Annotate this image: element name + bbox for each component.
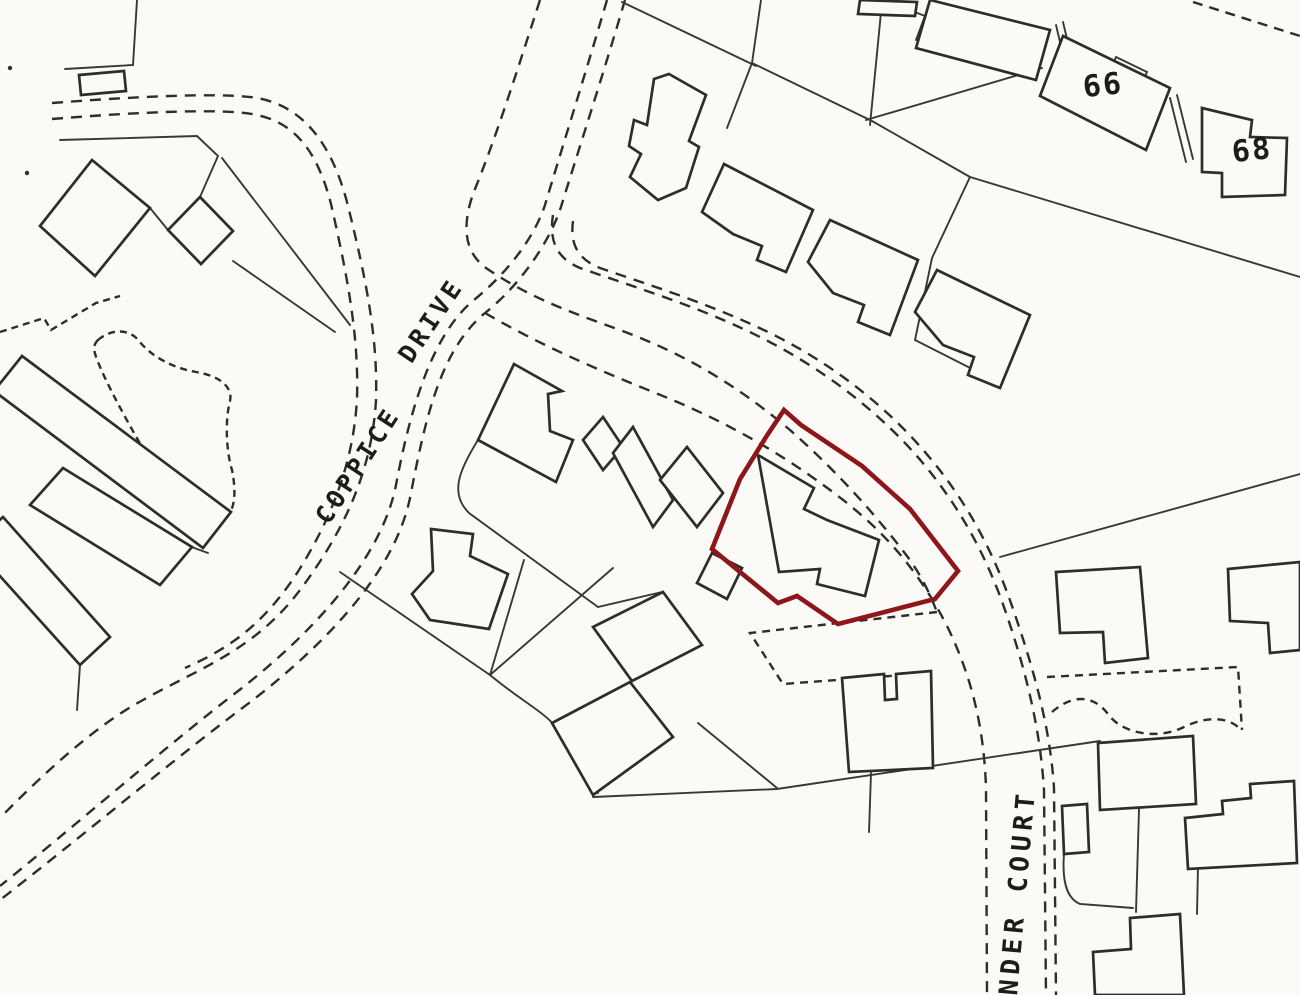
map-speck-0 [8,66,12,70]
fence-to-road-b-line [233,261,335,332]
dashed-zigzag-west-dashed-line [0,296,120,332]
site-boundary-red-outline [712,410,958,624]
house-middle-c-building-outline [660,447,723,527]
house-bottom-partial-building-outline [1093,914,1184,995]
house-coppice-east-building-outline [478,364,573,482]
road-court-south-dashed-line [485,313,987,995]
house-top-row-4-building-outline [915,270,1030,388]
party-wall-68-a-line [1170,98,1186,162]
house-court-l-shape-building-outline [842,671,933,772]
house-inside-site-building-outline [758,455,879,596]
fence-to-road-a-line [222,158,350,325]
party-wall-68-b-line [1177,95,1193,159]
house-court-stepped-building-outline [1185,781,1297,869]
fence-top-center-c-line [727,63,752,128]
plot-dashed-court-a-dashed-line [1047,667,1242,730]
house-east-l-shape-building-outline [1056,567,1148,663]
fence-vertical-top-line [870,2,882,125]
shed-diamond-building-outline [168,197,233,264]
field-line-east-line [1000,474,1300,557]
plot-dashed-court-wavy-dashed-line [1052,699,1239,734]
house-pair-northwest-building-outline [40,160,150,276]
fence-court-vert-b-line [869,773,871,832]
fence-court-vert-c-line [1197,866,1198,914]
outbuilding-top-left-building-outline [79,71,126,95]
house-top-edge-b-building-outline [916,0,1050,80]
terrace-tail-line [77,665,80,710]
house-court-block-building-outline [1098,736,1196,810]
fence-bottom-e-line [698,723,777,788]
house-top-row-1-building-outline [629,74,706,200]
street-name-label: DRIVE [392,273,469,368]
wall-top-left-line [65,0,137,69]
house-number-label: 68 [1230,131,1274,170]
house-southwest-building-outline [412,529,508,629]
house-top-row-2-building-outline [702,164,813,272]
house-top-edge-a-building-outline [858,0,917,16]
fence-top-center-a-line [622,2,756,66]
fence-mid-c-line [490,568,613,675]
street-name-label: COPPICE [309,402,406,530]
dashed-top-right-corner-dashed-line [1193,2,1300,36]
outbuilding-court-building-outline [1062,804,1089,854]
house-number-label: 66 [1081,66,1125,105]
garden-round-court-line [1064,854,1133,908]
fence-top-center-d-line [752,63,970,177]
house-top-row-3-building-outline [808,220,918,335]
house-east-partial-building-outline [1228,562,1300,653]
site-plan-page: COPPICEDRIVENDER COURT6668 [0,0,1300,995]
street-name-label: NDER COURT [994,788,1042,995]
map-speck-1 [25,171,29,175]
fence-link-shed-line [150,208,168,230]
site-plan-map: COPPICEDRIVENDER COURT6668 [0,0,1300,995]
square-house-north-building-outline [593,592,702,681]
fence-top-center-b-line [752,0,761,63]
square-house-south-building-outline [552,682,673,795]
garage-inside-site-building-outline [697,553,742,599]
